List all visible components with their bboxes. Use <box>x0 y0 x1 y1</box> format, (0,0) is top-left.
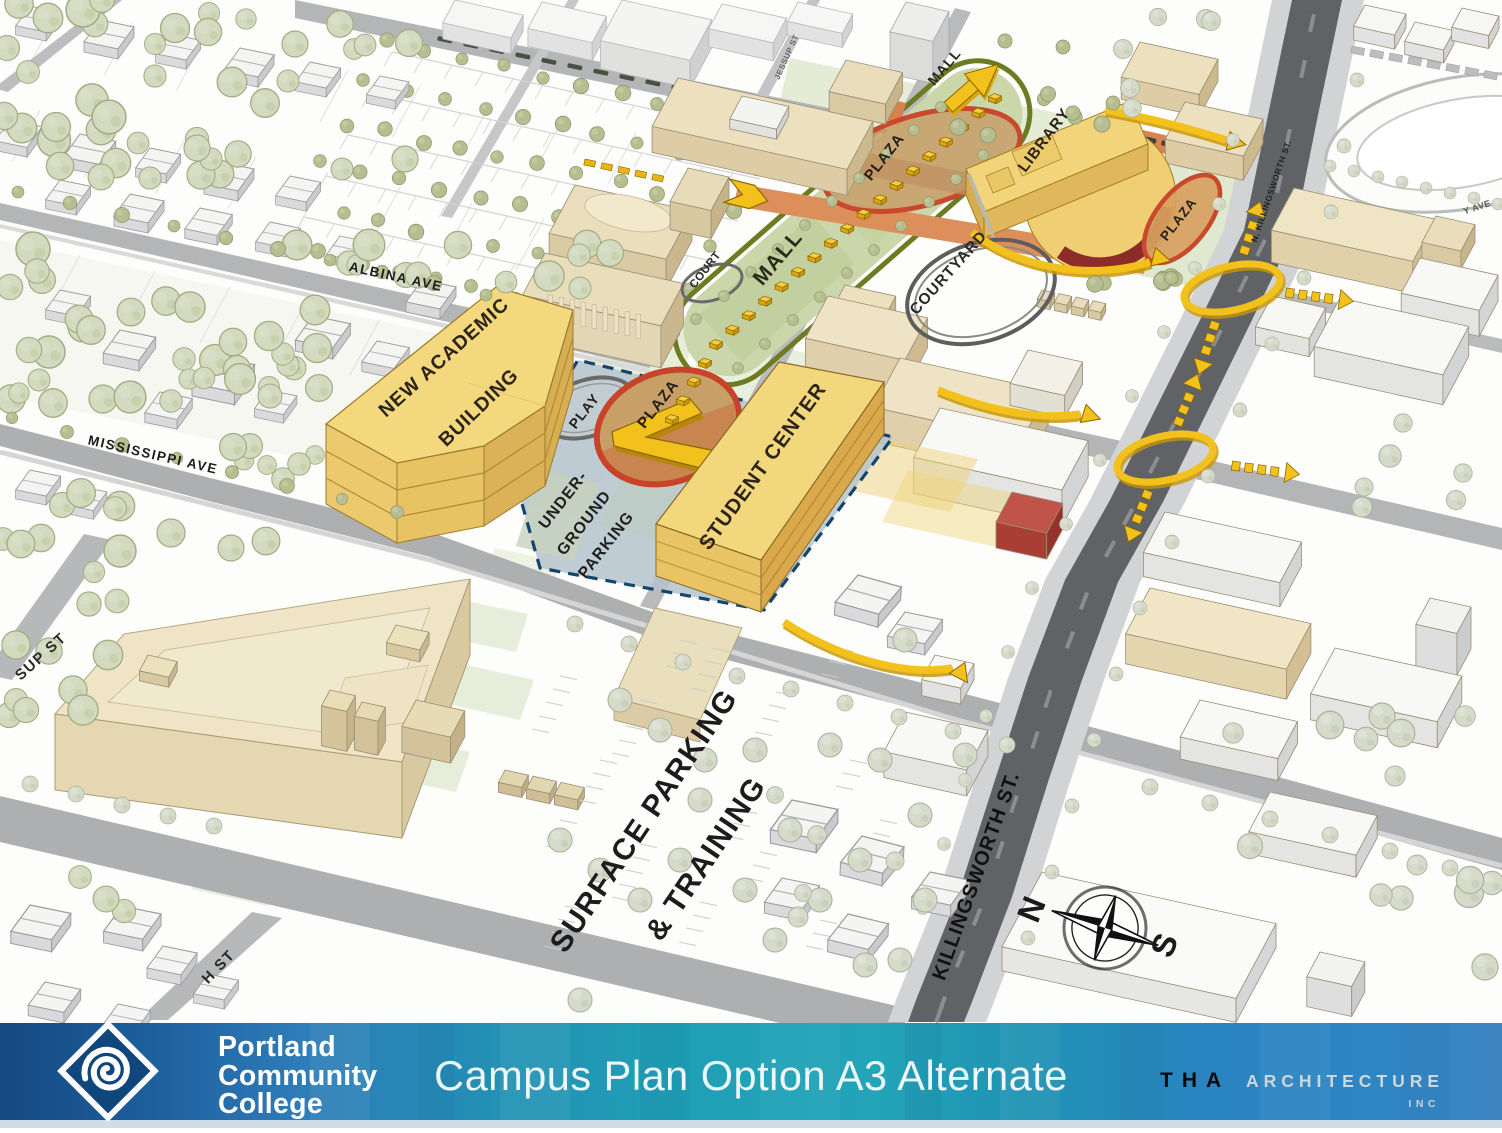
svg-text:ARCHITECTURE: ARCHITECTURE <box>1246 1071 1444 1091</box>
svg-text:Campus Plan Option A3 Alternat: Campus Plan Option A3 Alternate <box>434 1052 1068 1099</box>
svg-text:THA: THA <box>1160 1069 1230 1092</box>
svg-text:College: College <box>218 1088 323 1120</box>
svg-text:Portland: Portland <box>218 1031 336 1063</box>
svg-text:INC: INC <box>1408 1098 1440 1110</box>
